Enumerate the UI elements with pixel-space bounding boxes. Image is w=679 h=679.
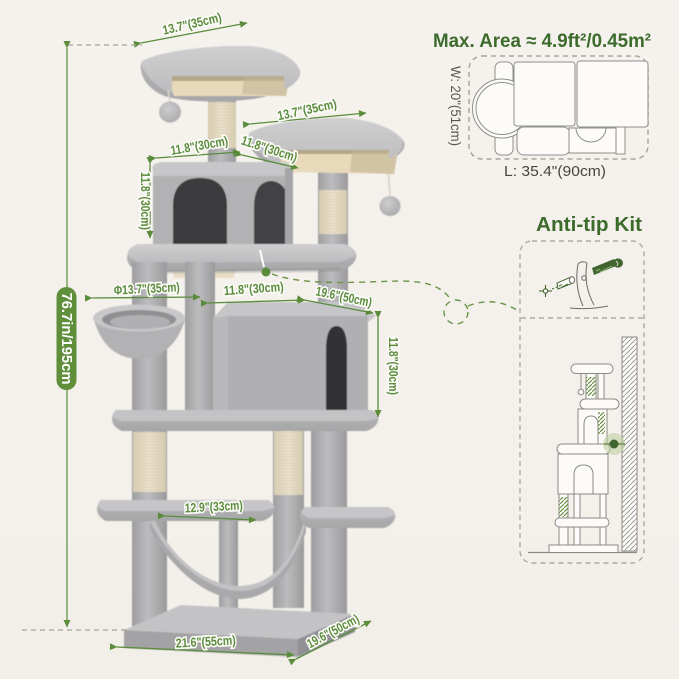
svg-text:76.7in/195cm: 76.7in/195cm <box>58 293 75 385</box>
svg-text:Max. Area ≈ 4.9ft²/0.45m²: Max. Area ≈ 4.9ft²/0.45m² <box>433 30 651 52</box>
svg-text:11.8"(30cm): 11.8"(30cm) <box>386 337 400 395</box>
svg-text:L: 35.4"(90cm): L: 35.4"(90cm) <box>504 163 606 180</box>
svg-text:Anti-tip Kit: Anti-tip Kit <box>536 214 642 236</box>
svg-text:W: 20"(51cm): W: 20"(51cm) <box>448 66 464 146</box>
svg-text:21.6"(55cm): 21.6"(55cm) <box>175 632 236 650</box>
svg-text:12.9"(33cm): 12.9"(33cm) <box>184 497 243 515</box>
svg-text:11.8"(30cm): 11.8"(30cm) <box>138 172 152 230</box>
